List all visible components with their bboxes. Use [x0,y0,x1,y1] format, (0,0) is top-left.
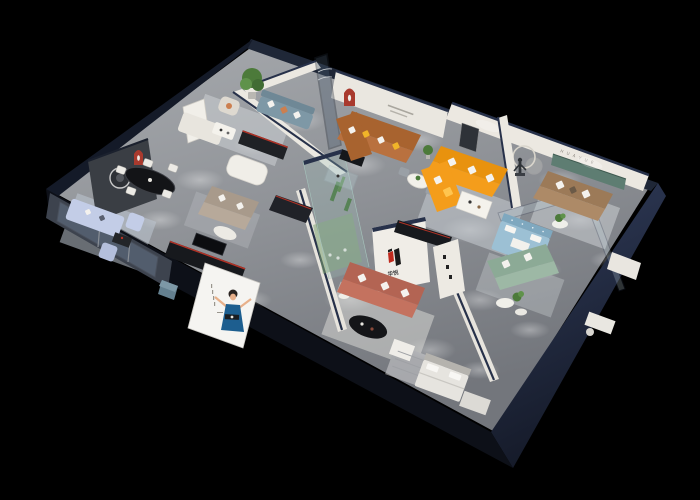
isometric-floorplan: H U A Y U E [0,0,700,500]
desk-chair [586,328,594,336]
niche-figurine [137,155,140,161]
table-centerpiece [148,178,152,182]
round-mirror [526,158,542,174]
circle-wall-art-center [116,174,124,182]
showroom-render: H U A Y U E [0,0,700,500]
belt-flower [231,316,234,319]
niche-figurine [348,95,351,101]
woman-face [230,294,236,301]
